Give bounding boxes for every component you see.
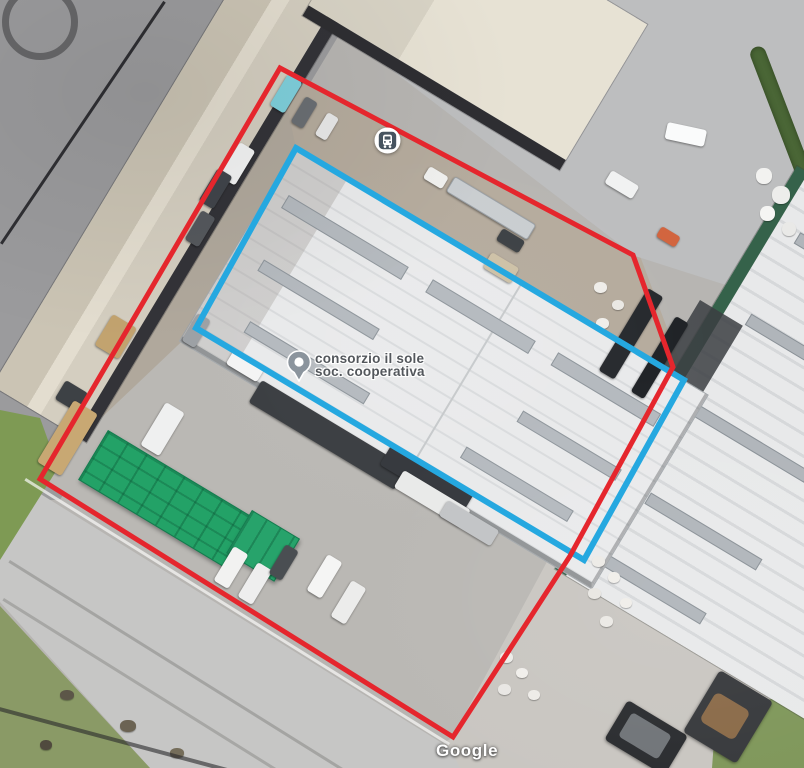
poi-label-line2: soc. cooperativa — [315, 365, 445, 378]
satellite-map-canvas[interactable]: consorzio il sole soc. cooperativa Googl… — [0, 0, 804, 768]
google-watermark: Google — [436, 741, 498, 761]
poi-label[interactable]: consorzio il sole soc. cooperativa — [315, 352, 445, 378]
bus-stop-icon[interactable] — [374, 127, 401, 154]
red-boundary-outline — [40, 68, 673, 737]
poi-pin-icon[interactable] — [286, 350, 312, 387]
overlay-layer — [0, 0, 804, 768]
